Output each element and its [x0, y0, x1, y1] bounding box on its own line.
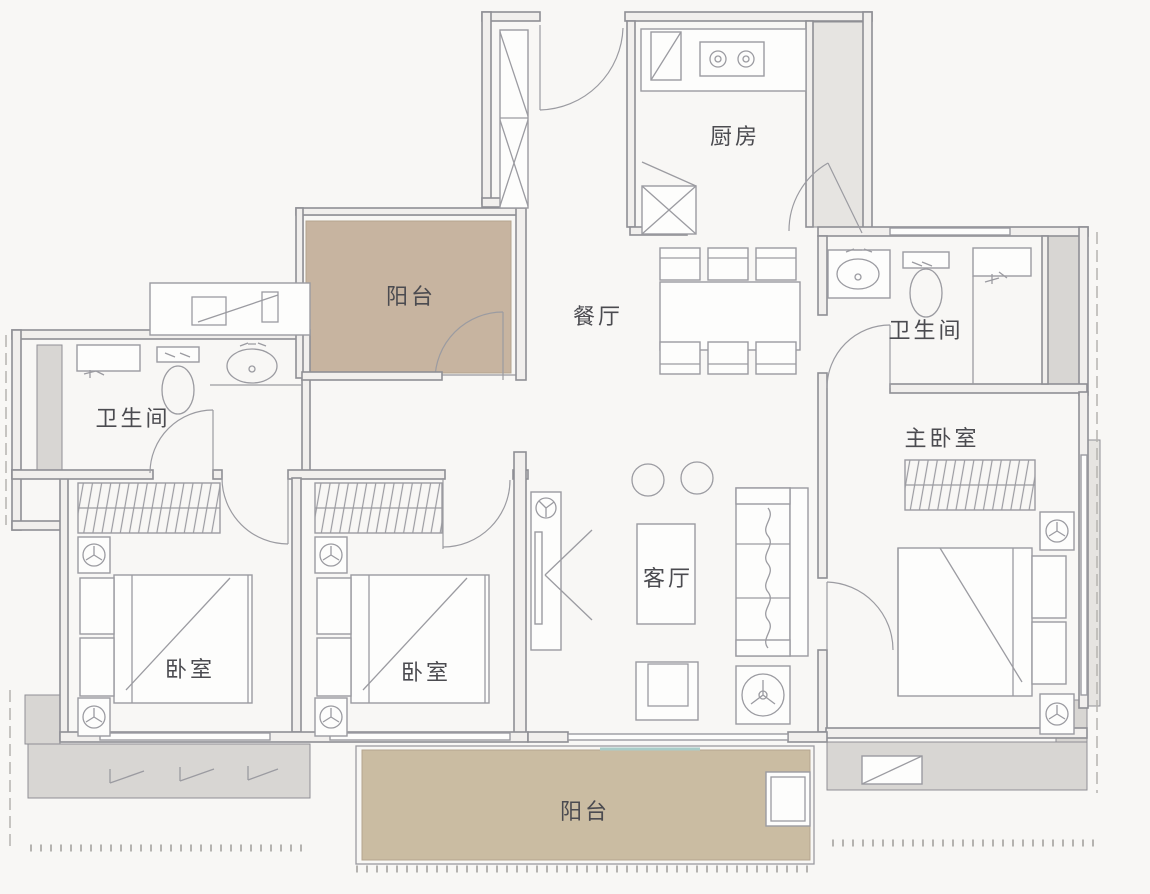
room-label-master-bedroom: 主卧室 — [904, 421, 979, 453]
floor-plan: 厨房 阳台 餐厅 卫生间 卫生间 主卧室 客厅 卧室 卧室 阳台 — [0, 0, 1150, 894]
room-label-balcony-top: 阳台 — [386, 279, 436, 311]
room-label-bedroom-mid: 卧室 — [401, 655, 451, 687]
pillow-icon — [1032, 556, 1066, 618]
living-area — [531, 462, 808, 724]
pillow-icon — [317, 578, 351, 634]
shower-shelf — [973, 248, 1031, 276]
pillow-icon — [1032, 622, 1066, 684]
armchair-icon — [636, 662, 698, 720]
stool-icon — [681, 462, 713, 494]
pillow-icon — [80, 578, 114, 634]
bedroom-left-area — [78, 478, 288, 736]
master-door-icon — [827, 582, 893, 650]
window-bedroom-left — [100, 733, 270, 740]
room-label-bath-left: 卫生间 — [95, 401, 170, 433]
dining-table-icon — [660, 282, 800, 350]
window-bath-right — [890, 228, 1010, 235]
washing-machine-icon — [766, 772, 810, 826]
sliding-door-living — [568, 734, 788, 740]
room-label-balcony-bottom: 阳台 — [560, 794, 610, 826]
master-bay-strip — [1088, 440, 1100, 706]
window-bedroom-mid — [330, 733, 510, 740]
bay-window-bath-left — [150, 283, 310, 335]
toilet-right-icon — [910, 269, 942, 317]
shoe-cabinet-icon — [500, 30, 528, 208]
bedroom-mid-door-icon — [443, 480, 510, 547]
room-label-dining: 餐厅 — [573, 299, 623, 331]
bed-master-icon — [898, 548, 1032, 696]
master-bedroom-area — [827, 460, 1074, 734]
bedroom-mid-area — [315, 478, 510, 736]
toilet-left-tank — [157, 347, 199, 362]
room-label-kitchen: 厨房 — [710, 119, 760, 151]
room-label-bedroom-left: 卧室 — [165, 652, 215, 684]
pillow-icon — [317, 638, 351, 696]
room-label-living: 客厅 — [643, 561, 693, 593]
bath-right-door-icon — [827, 325, 890, 388]
toilet-right-tank — [903, 252, 949, 268]
bedroom-left-door-icon — [222, 478, 288, 544]
sofa-icon — [736, 488, 790, 656]
window-master — [1081, 455, 1087, 695]
bay-window-bottom-left — [28, 744, 310, 798]
pillow-icon — [80, 638, 114, 696]
stool-icon — [632, 464, 664, 496]
room-label-bath-right: 卫生间 — [888, 313, 963, 345]
tv-icon — [535, 532, 542, 624]
mirror-cabinet — [77, 345, 140, 371]
entry-door-icon — [540, 28, 623, 110]
pipe-shaft — [1048, 236, 1079, 384]
dining-area — [660, 248, 800, 374]
shower-left-icon — [37, 345, 62, 473]
entry-area — [500, 25, 623, 208]
equipment-shaft — [813, 22, 863, 227]
